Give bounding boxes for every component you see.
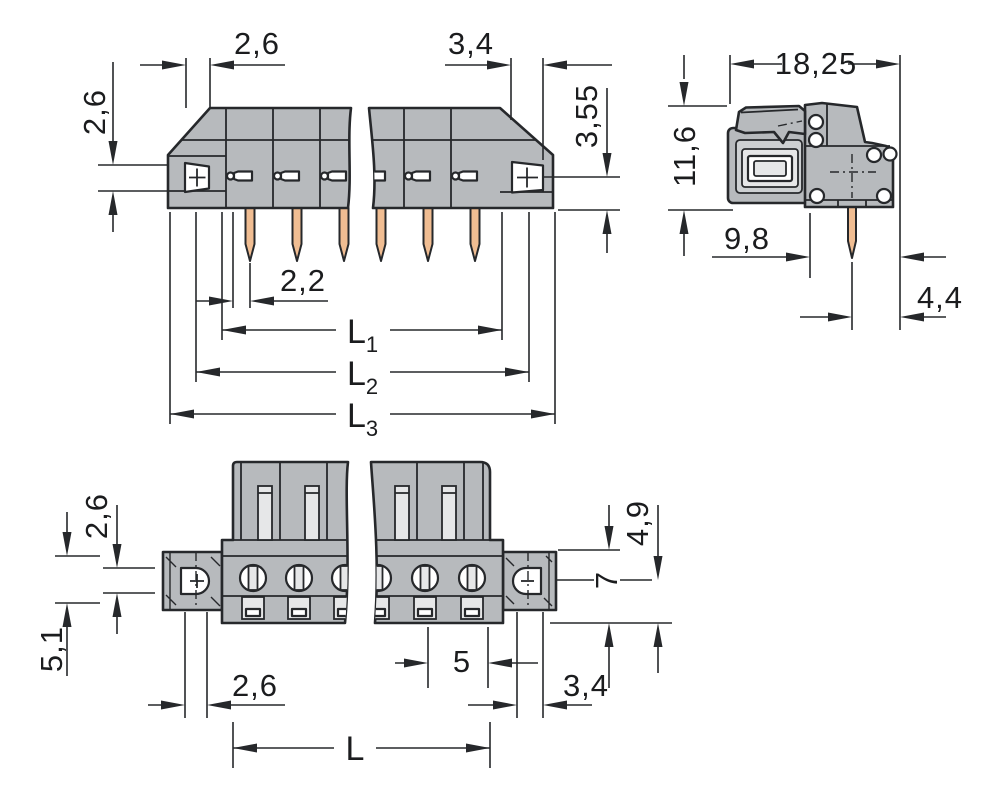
housing-left-half (168, 108, 351, 208)
contact-hole-slot (295, 566, 304, 590)
slot-opening (328, 172, 346, 181)
side-contact-slot-inner (754, 161, 786, 176)
bottom-opening-inner (338, 609, 352, 616)
slot-opening (281, 172, 299, 181)
front-view: 2,6 3,4 2,6 3,55 2,2 L1 L2 L3 (77, 26, 620, 441)
contact-hole-slot (249, 566, 258, 590)
dim-label-side-height: 11,6 (667, 125, 702, 187)
connector-dimension-drawing: 2,6 3,4 2,6 3,55 2,2 L1 L2 L3 (0, 0, 1000, 796)
side-view: 18,25 11,6 9,8 4,4 (667, 46, 963, 330)
dimension-arrowheads-bottom (63, 526, 663, 753)
dim-label-bottom-left-lower: 5,1 (34, 626, 69, 672)
housing-right-half (369, 108, 553, 208)
dim-label-bottom-left-width: 2,6 (232, 668, 278, 703)
rivet-circle (877, 189, 891, 203)
rivet-circle (810, 189, 824, 203)
dim-label-side-pin-edge: 4,4 (917, 280, 963, 315)
contact-hole-slot (374, 566, 383, 590)
dim-label-front-side-left: 2,6 (77, 89, 112, 135)
bottom-opening-inner (371, 609, 385, 616)
bottom-opening-inner (246, 609, 260, 616)
dim-label-pin-offset: 2,2 (280, 263, 326, 298)
solder-pin (377, 208, 386, 261)
slot-opening (367, 172, 385, 181)
bottom-opening-inner (292, 609, 306, 616)
dim-label-bottom-right-upper: 4,9 (620, 500, 655, 546)
dim-label-front-side-right: 3,55 (569, 84, 604, 148)
mounting-flange-left (163, 552, 222, 610)
solder-pin (471, 208, 480, 261)
solder-pin-side (848, 207, 856, 258)
solder-pin (424, 208, 433, 261)
rivet-circle (809, 115, 823, 129)
slot-opening (459, 172, 477, 181)
bottom-openings (367, 597, 483, 619)
tower-slot (305, 486, 319, 540)
rivet-circle (884, 148, 897, 161)
contact-holes (240, 565, 358, 591)
contact-holes (365, 565, 485, 591)
dim-label-l3: L3 (347, 397, 378, 441)
bottom-opening-inner (465, 609, 479, 616)
dim-label-l2: L2 (347, 355, 378, 399)
wire-entry-slots (360, 172, 477, 181)
rivet-circle (809, 133, 823, 147)
slot-funnel (360, 173, 367, 180)
dim-label-side-width: 18,25 (775, 46, 858, 81)
solder-pin (293, 208, 302, 261)
dimension-lines-bottom (67, 505, 658, 748)
dim-label-l1: L1 (347, 313, 378, 357)
tower-slot (258, 486, 272, 540)
dim-label-bottom-right-width: 3,4 (563, 668, 609, 703)
rivet-circle (867, 148, 881, 162)
dim-label-side-depth: 9,8 (724, 221, 770, 256)
solder-pins-front (246, 208, 480, 261)
dim-label-front-top-right: 3,4 (448, 26, 494, 61)
slot-opening (412, 172, 430, 181)
dim-label-front-top-left: 2,6 (234, 26, 280, 61)
tower-slot (442, 486, 456, 540)
contact-hole-slot (468, 566, 477, 590)
technical-drawing-page: 2,6 3,4 2,6 3,55 2,2 L1 L2 L3 (0, 0, 1000, 796)
mounting-flange-right (503, 552, 556, 610)
contact-hole-slot (421, 566, 430, 590)
dim-label-bottom-left-upper: 2,6 (79, 493, 114, 539)
bottom-opening-inner (418, 609, 432, 616)
wire-entry-slots (227, 172, 346, 181)
dim-label-pitch: 5 (453, 644, 471, 679)
bottom-openings (242, 597, 356, 619)
dim-label-length: L (346, 730, 365, 768)
slot-opening (234, 172, 252, 181)
solder-pin (340, 208, 349, 261)
solder-pin (246, 208, 255, 261)
tower-slot (395, 486, 409, 540)
bottom-view: 2,6 5,1 4,9 7 5 2,6 3,4 L (34, 462, 672, 768)
dim-label-bottom-right-mid: 7 (589, 571, 624, 589)
